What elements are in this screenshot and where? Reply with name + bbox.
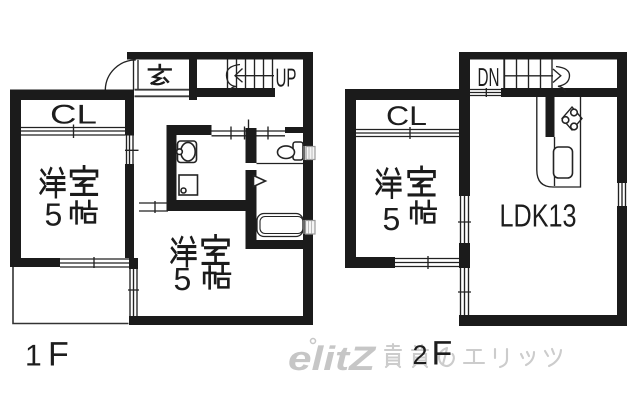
svg-text:F: F bbox=[48, 336, 69, 374]
svg-text:5: 5 bbox=[45, 197, 63, 233]
svg-text:5: 5 bbox=[174, 261, 192, 297]
svg-text:1: 1 bbox=[25, 340, 42, 373]
svg-text:elitZ: elitZ bbox=[288, 340, 377, 378]
svg-text:DN: DN bbox=[478, 62, 500, 92]
svg-text:5: 5 bbox=[383, 201, 401, 237]
svg-text:CL: CL bbox=[386, 101, 427, 131]
svg-text:UP: UP bbox=[276, 63, 297, 93]
svg-text:F: F bbox=[432, 335, 453, 373]
svg-text:LDK13: LDK13 bbox=[500, 198, 577, 234]
svg-text:2: 2 bbox=[413, 340, 428, 370]
svg-text:CL: CL bbox=[50, 100, 97, 130]
